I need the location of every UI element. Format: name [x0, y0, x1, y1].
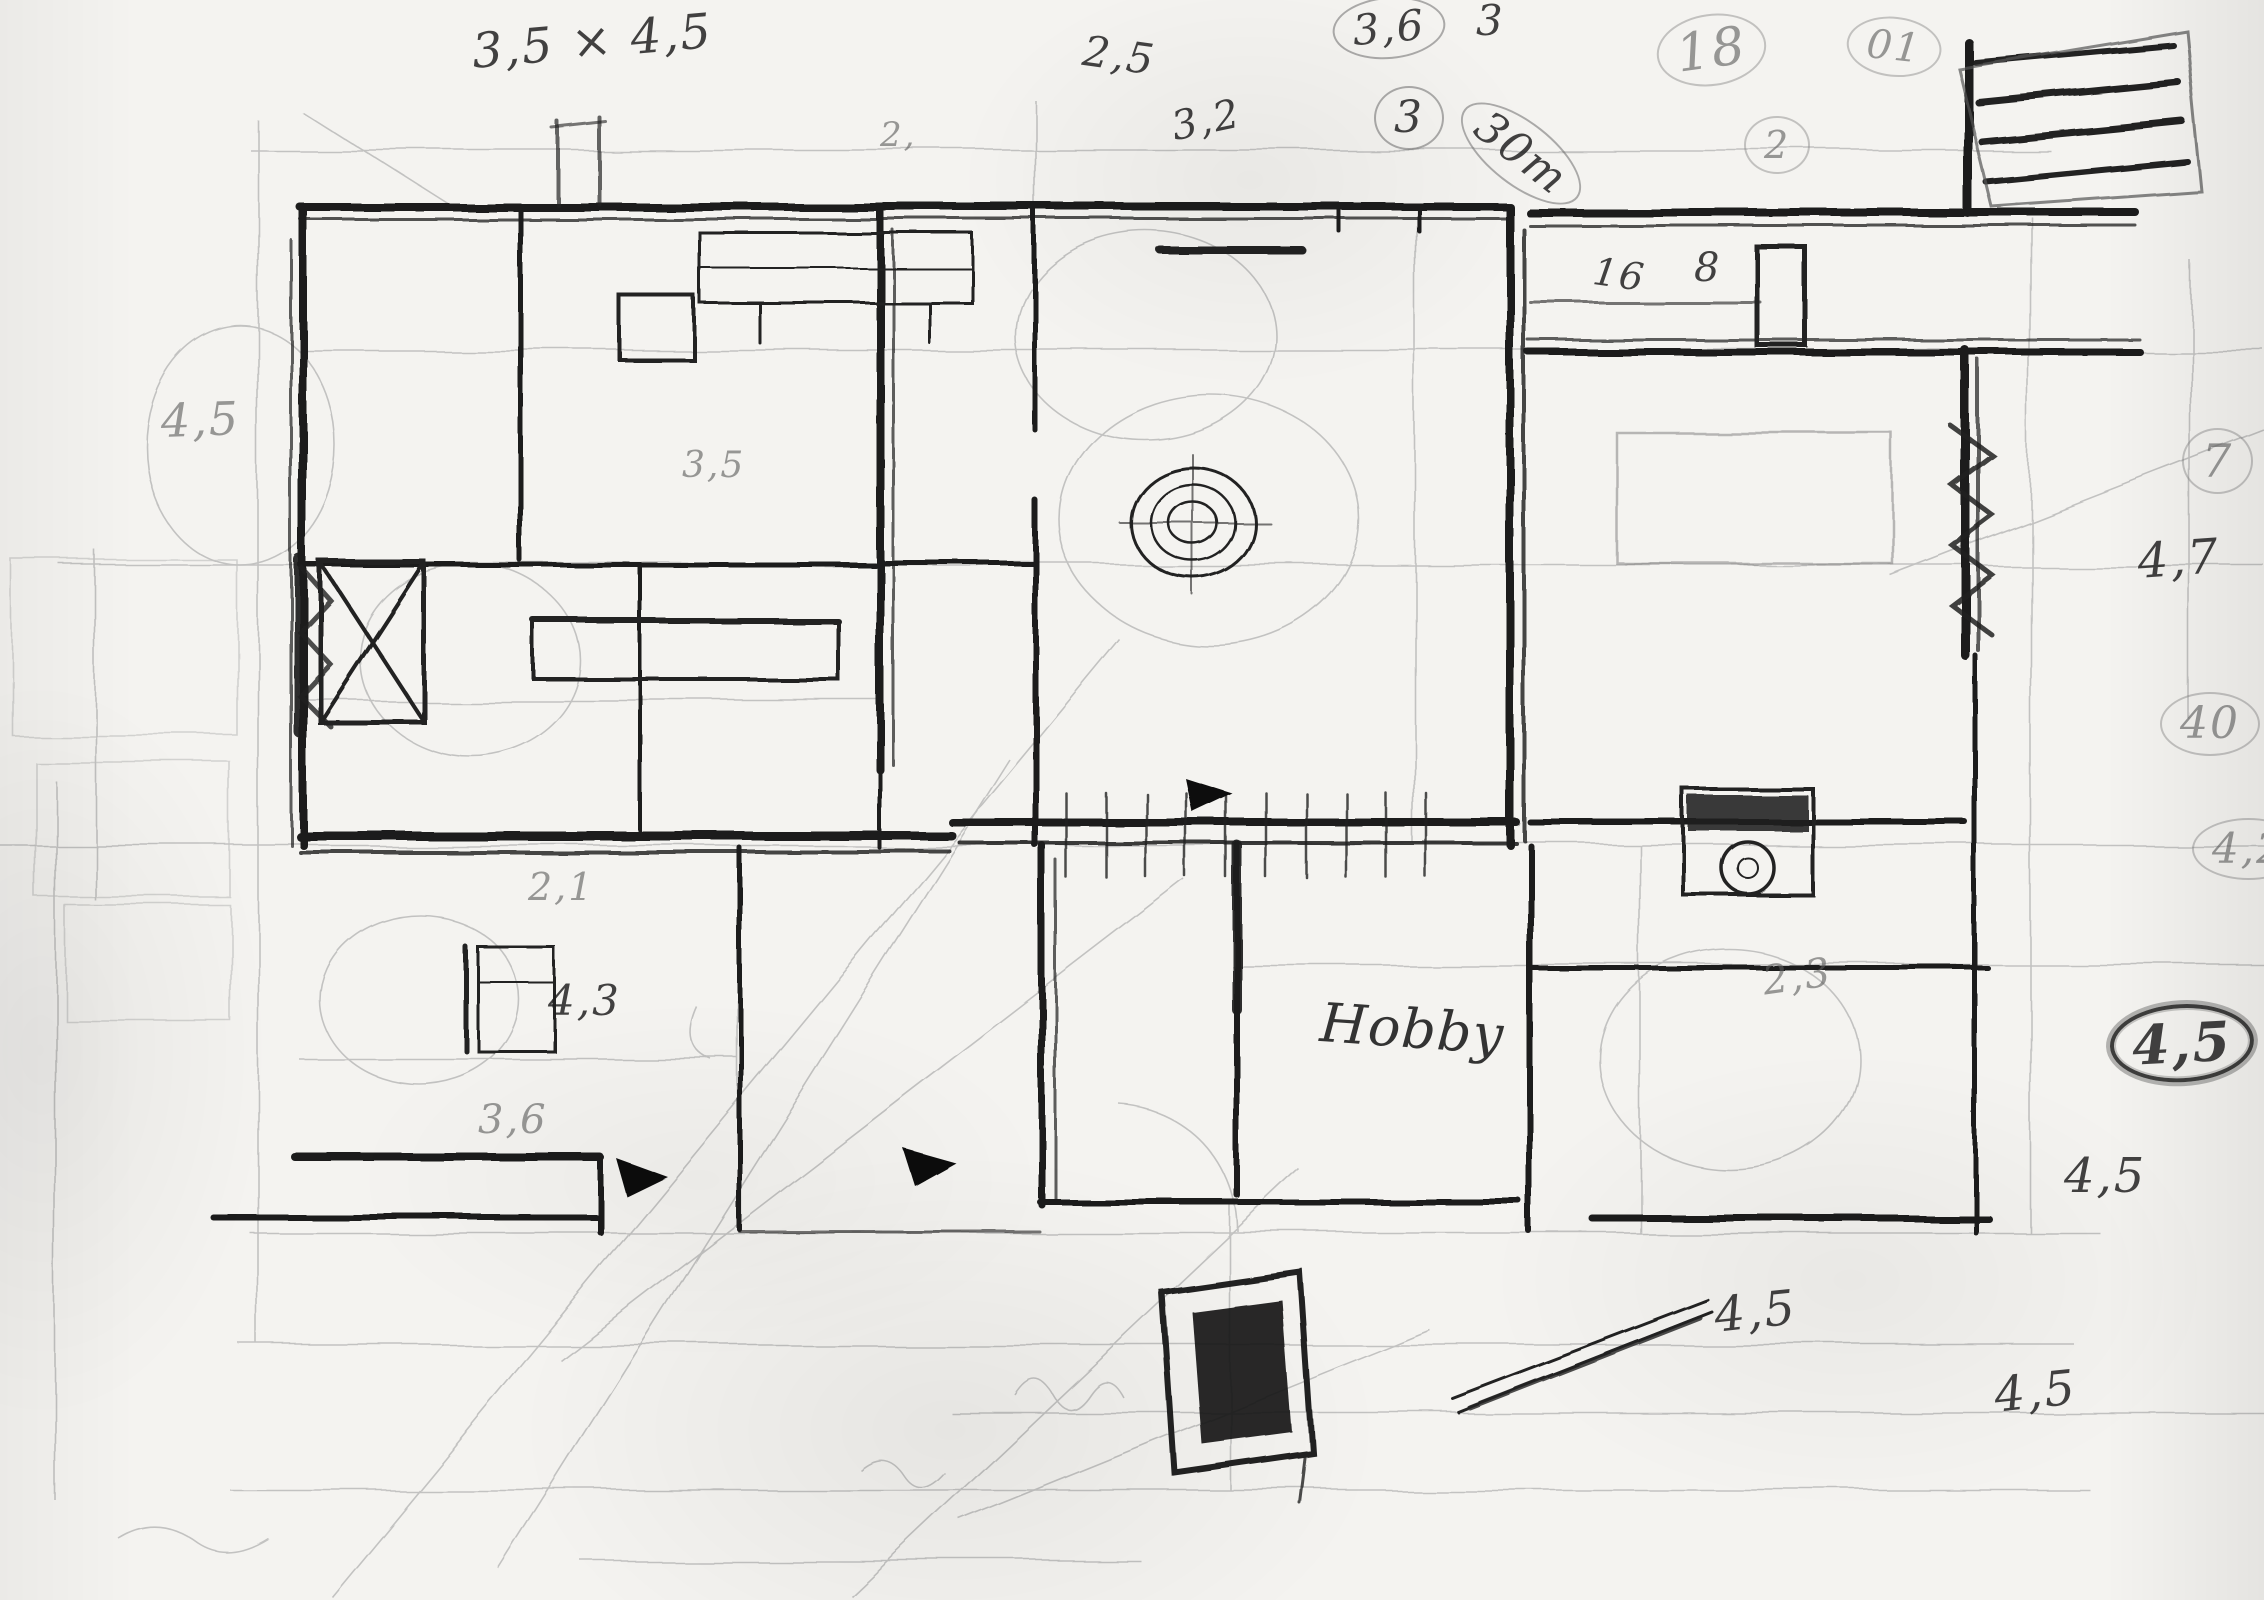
annotation-dim-16: 16 — [1591, 252, 1648, 297]
annotation-dim-4-5-bottom-mid: 4,5 — [1712, 1283, 1799, 1339]
annotation-dim-3-6-top: 3,6 — [1330, 0, 1448, 64]
annotation-dim-2-5: 2,5 — [1080, 30, 1158, 82]
annotation-dim-top-left: 3,5 × 4,5 — [470, 7, 715, 76]
annotation-dim-3-circled: 3 — [1374, 86, 1444, 150]
annotation-dim-2-3: 2,3 — [1760, 952, 1835, 1001]
annotation-layer: 3,5 × 4,52,52,3,23,63330m1801216874,7404… — [0, 0, 2264, 1600]
annotation-dim-40: 40 — [2160, 692, 2260, 756]
annotation-room-hobby: Hobby — [1318, 996, 1506, 1063]
paper-sheet: 3,5 × 4,52,52,3,23,63330m1801216874,7404… — [0, 0, 2264, 1600]
annotation-dim-2-1: 2,1 — [528, 868, 594, 906]
annotation-dim-30m: 30m — [1445, 84, 1598, 223]
annotation-dim-4-5-ringed: 4,5 — [2108, 1000, 2256, 1085]
annotation-dim-4-3: 4,3 — [548, 980, 621, 1022]
annotation-dim-4-5-bottom-right: 4,5 — [1992, 1363, 2079, 1419]
annotation-dim-2-circled: 2 — [1744, 116, 1810, 174]
annotation-dim-3-6-lower: 3,6 — [478, 1100, 548, 1140]
annotation-dim-3-5-mid: 3,5 — [682, 448, 745, 484]
annotation-dim-3-2: 3,2 — [1168, 94, 1244, 148]
annotation-dim-3-top: 3 — [1476, 0, 1505, 42]
annotation-dim-18: 18 — [1652, 7, 1771, 94]
annotation-dim-4-5-left: 4,5 — [160, 395, 241, 444]
annotation-dim-8: 8 — [1694, 248, 1721, 288]
annotation-dim-2-dot: 2, — [880, 118, 916, 152]
annotation-dim-4-7: 4,7 — [2136, 532, 2221, 586]
annotation-dim-4-5-right: 4,5 — [2064, 1152, 2146, 1200]
annotation-dim-7: 7 — [2182, 428, 2253, 494]
annotation-dim-01: 01 — [1844, 12, 1945, 82]
annotation-dim-4-2: 4,2 — [2192, 818, 2264, 880]
